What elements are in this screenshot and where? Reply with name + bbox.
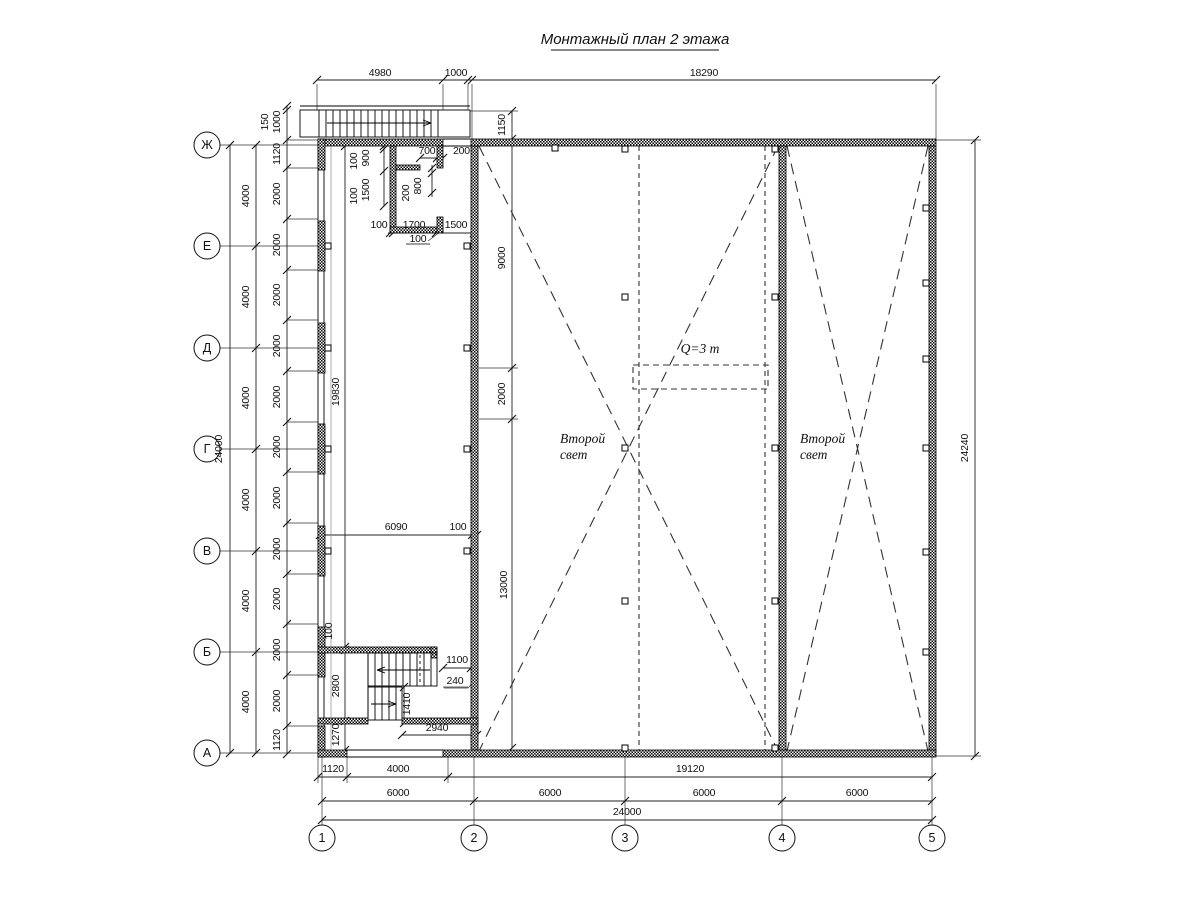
dim-right-total: 24240 — [959, 434, 971, 463]
svg-text:800: 800 — [412, 177, 424, 194]
dim-1000v: 1000 — [271, 110, 283, 133]
svg-text:2000: 2000 — [271, 435, 283, 458]
stairwell-wall-top — [318, 647, 437, 653]
svg-text:4000: 4000 — [240, 184, 252, 207]
svg-text:2000: 2000 — [271, 486, 283, 509]
svg-text:свет: свет — [800, 447, 828, 462]
row-label: Ж — [201, 138, 213, 152]
svg-text:2000: 2000 — [271, 233, 283, 256]
row-label: Е — [203, 239, 211, 253]
svg-text:100: 100 — [348, 152, 360, 169]
row-label: А — [203, 746, 212, 760]
svg-text:6000: 6000 — [539, 787, 562, 799]
second-light-label: Второй — [560, 431, 605, 446]
dim-1000: 1000 — [445, 67, 468, 79]
dim-1100: 1100 — [446, 654, 468, 666]
text-annotations: Второй свет Второй свет Q=3 т — [560, 341, 845, 462]
svg-text:2000: 2000 — [271, 283, 283, 306]
crane-rails — [639, 146, 765, 750]
dim-18290: 18290 — [690, 67, 719, 79]
svg-text:100: 100 — [323, 622, 335, 639]
dim-left-total: 24000 — [213, 435, 225, 464]
svg-text:6000: 6000 — [846, 787, 869, 799]
stairwell-wall-bottom-left — [318, 718, 368, 724]
label-underlines — [406, 244, 468, 687]
svg-text:100: 100 — [348, 187, 360, 204]
svg-text:2000: 2000 — [271, 638, 283, 661]
svg-text:свет: свет — [560, 447, 588, 462]
dim-2000: 2000 — [496, 382, 508, 405]
stair-direction-arrow — [327, 120, 431, 126]
column-axis-bubbles: 1 2 3 4 5 — [309, 825, 945, 851]
second-light-label: Второй — [800, 431, 845, 446]
room-wall-right-top — [437, 146, 443, 168]
svg-text:700: 700 — [419, 145, 436, 157]
svg-text:200: 200 — [453, 145, 470, 157]
svg-text:900: 900 — [360, 149, 372, 166]
dim-2940: 2940 — [426, 722, 449, 734]
col-label: 2 — [471, 831, 478, 845]
row-label: Г — [204, 442, 211, 456]
svg-text:100: 100 — [371, 219, 388, 231]
svg-text:1120: 1120 — [271, 143, 283, 165]
roof-bracing — [479, 146, 928, 751]
left-dimensions: 24000 4000 4000 4000 4000 4000 4000 1120… — [213, 143, 283, 751]
svg-text:4000: 4000 — [240, 386, 252, 409]
dimension-chain-lines — [230, 80, 975, 820]
svg-text:4000: 4000 — [240, 488, 252, 511]
exterior-stair-top — [300, 106, 470, 137]
svg-text:2000: 2000 — [271, 587, 283, 610]
col-label: 4 — [779, 831, 786, 845]
dim-1410: 1410 — [401, 692, 413, 715]
col-label: 5 — [929, 831, 936, 845]
svg-text:1700: 1700 — [403, 219, 426, 231]
floor-plan-canvas: Монтажный план 2 этажа — [0, 0, 1200, 900]
svg-text:4000: 4000 — [387, 763, 410, 775]
stair-arrow-upper — [377, 667, 430, 673]
extension-lines — [220, 84, 981, 825]
dim-1150: 1150 — [496, 114, 508, 136]
svg-text:200: 200 — [400, 184, 412, 201]
dim-6090: 6090 — [385, 521, 408, 533]
dim-1270: 1270 — [330, 723, 342, 746]
svg-text:100: 100 — [450, 521, 467, 533]
dim-13000: 13000 — [498, 571, 510, 600]
dim-240: 240 — [447, 675, 464, 687]
room-wall-left — [390, 146, 396, 233]
top-dimensions: 4980 1000 18290 150 1000 1150 — [259, 67, 718, 136]
svg-text:2000: 2000 — [271, 385, 283, 408]
svg-text:6000: 6000 — [693, 787, 716, 799]
dim-bottom-total: 24000 — [613, 806, 642, 818]
svg-text:1120: 1120 — [322, 763, 344, 775]
room-dimensions: 100 900 100 1500 700 200 200 800 100 170… — [348, 145, 470, 245]
col-label: 3 — [622, 831, 629, 845]
row-label: Б — [203, 645, 211, 659]
dim-2800: 2800 — [330, 674, 342, 697]
row-label: В — [203, 544, 211, 558]
dim-19830: 19830 — [330, 378, 342, 407]
svg-text:2000: 2000 — [271, 689, 283, 712]
room-wall-right-bottom — [437, 217, 443, 233]
crane-beam — [633, 365, 768, 389]
dimension-ticks — [226, 76, 979, 824]
svg-text:2000: 2000 — [271, 334, 283, 357]
dim-4980: 4980 — [369, 67, 392, 79]
room-partition — [396, 165, 420, 170]
bottom-dimensions: 1120 4000 19120 6000 6000 6000 6000 2400… — [322, 763, 869, 818]
dim-9000: 9000 — [496, 246, 508, 269]
svg-text:2000: 2000 — [271, 537, 283, 560]
svg-text:100: 100 — [410, 233, 427, 245]
dim-150: 150 — [259, 113, 271, 130]
svg-text:1500: 1500 — [445, 219, 468, 231]
dim-19120: 19120 — [676, 763, 705, 775]
svg-text:4000: 4000 — [240, 589, 252, 612]
svg-text:2000: 2000 — [271, 182, 283, 205]
svg-text:4000: 4000 — [240, 285, 252, 308]
row-label: Д — [203, 341, 212, 355]
svg-text:6000: 6000 — [387, 787, 410, 799]
svg-text:1120: 1120 — [271, 729, 283, 751]
col-label: 1 — [319, 831, 326, 845]
crane-capacity-label: Q=3 т — [681, 341, 720, 356]
drawing-title: Монтажный план 2 этажа — [541, 31, 730, 48]
svg-text:1500: 1500 — [360, 178, 372, 201]
svg-text:4000: 4000 — [240, 690, 252, 713]
